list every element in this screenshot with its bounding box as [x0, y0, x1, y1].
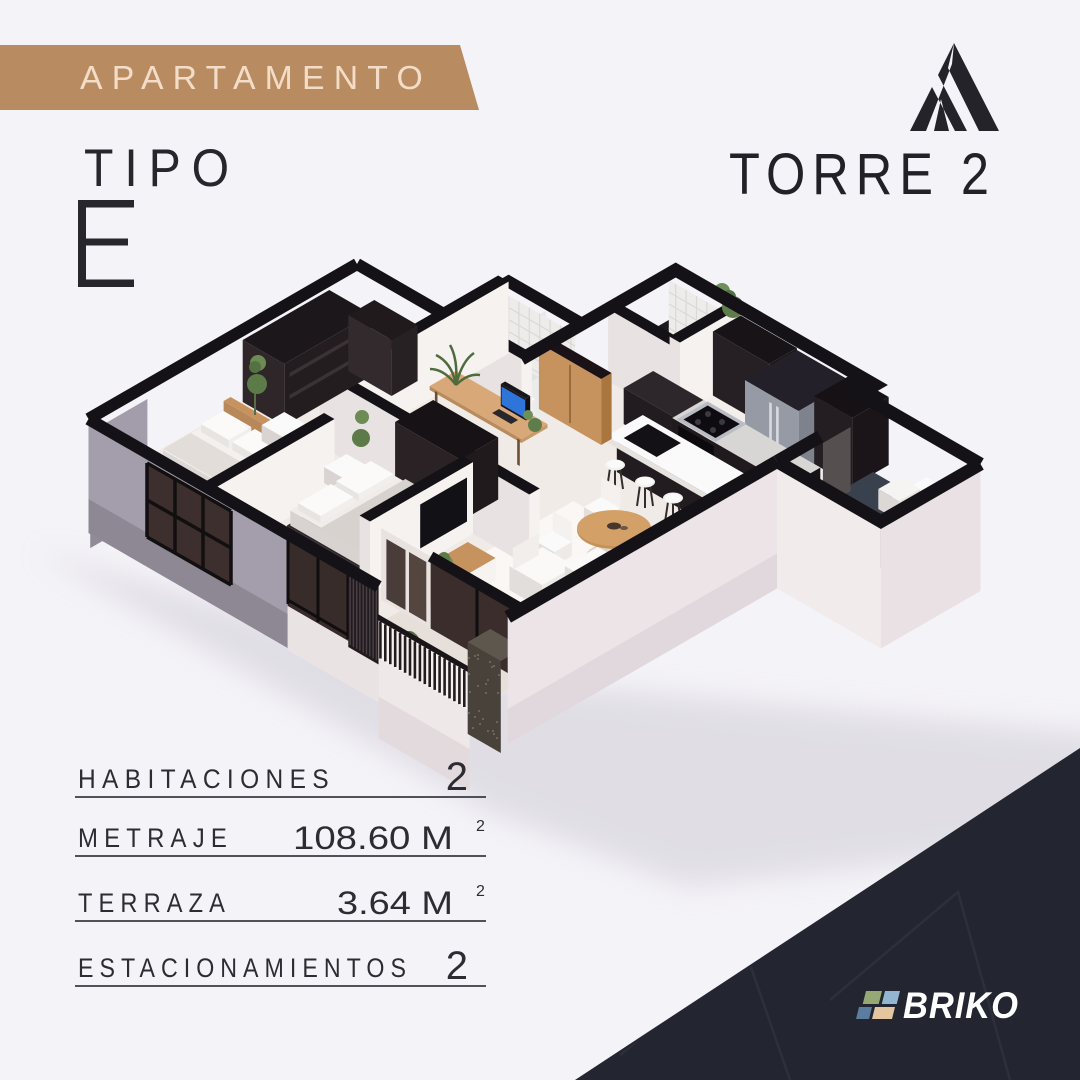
svg-text:HABITACIONES: HABITACIONES	[78, 764, 335, 794]
svg-text:BRIKO: BRIKO	[903, 985, 1019, 1026]
svg-text:TIPO: TIPO	[84, 139, 240, 198]
svg-text:ESTACIONAMIENTOS: ESTACIONAMIENTOS	[78, 953, 412, 983]
svg-text:2: 2	[476, 818, 485, 835]
svg-text:TORRE 2: TORRE 2	[729, 142, 996, 207]
svg-text:108.60 M: 108.60 M	[293, 820, 453, 856]
svg-text:2: 2	[476, 883, 485, 900]
svg-text:2: 2	[446, 755, 468, 799]
svg-text:APARTAMENTO: APARTAMENTO	[80, 59, 432, 96]
svg-text:TERRAZA: TERRAZA	[78, 888, 231, 918]
svg-text:2: 2	[446, 944, 468, 988]
svg-text:METRAJE: METRAJE	[78, 823, 233, 853]
svg-text:3.64 M: 3.64 M	[337, 885, 453, 921]
